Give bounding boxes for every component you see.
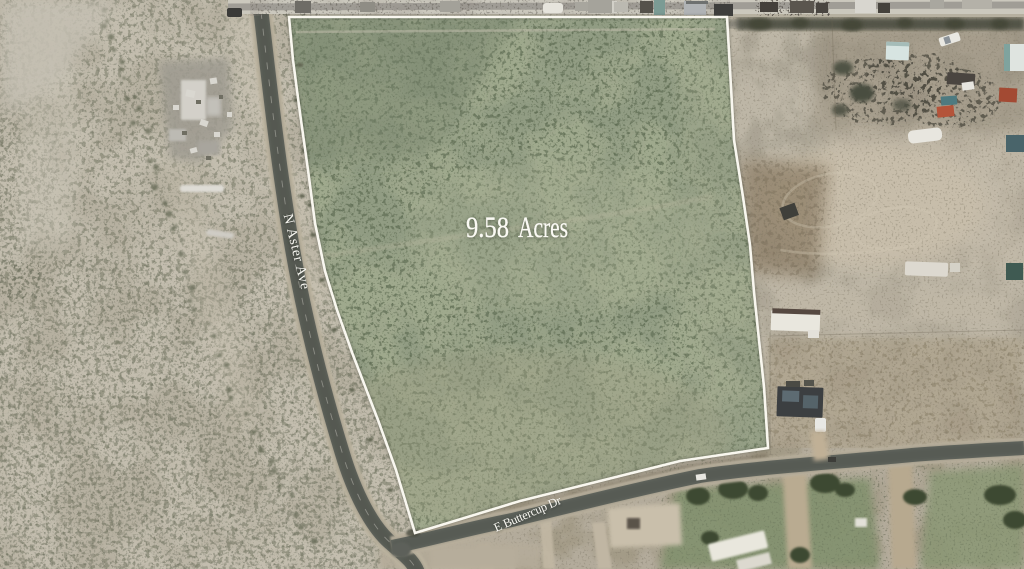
svg-text:Acres: Acres (518, 211, 568, 244)
svg-text:9.58: 9.58 (466, 211, 509, 244)
